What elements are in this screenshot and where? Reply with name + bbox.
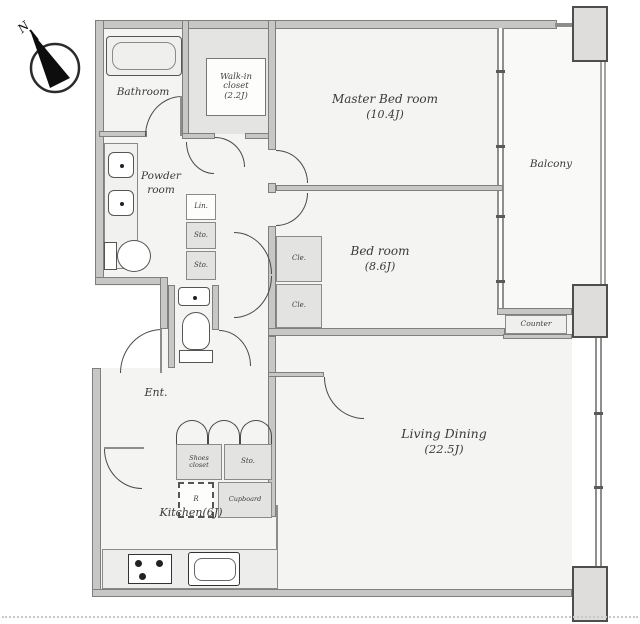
wall-kitchen-pass xyxy=(276,505,278,553)
toilet-icon xyxy=(117,240,151,272)
wall-bedroom-bottom xyxy=(268,328,505,336)
window-tick xyxy=(496,215,505,218)
window-tick xyxy=(594,412,603,415)
door-leaf-front-entry xyxy=(160,329,162,373)
wall-bath-bottom xyxy=(99,131,147,137)
wall-top xyxy=(95,20,557,29)
wall-master-bedroom-divider xyxy=(276,185,503,191)
wall-bedrooms-left-mid xyxy=(268,183,276,193)
wall-wc-left xyxy=(168,285,175,368)
wall-bottom xyxy=(92,589,572,597)
stove-icon xyxy=(128,554,172,584)
wall-top-connector xyxy=(555,23,573,27)
wall-powder-bottom xyxy=(95,277,168,285)
door-arc-front-entry xyxy=(120,329,162,373)
sink-icon xyxy=(178,287,210,306)
wall-bedrooms-left-upper xyxy=(268,20,276,150)
closet-door-scallop xyxy=(208,420,240,444)
wall-wic-bottom-left xyxy=(182,133,215,139)
window-tick xyxy=(496,70,505,73)
door-leaf-bathroom xyxy=(180,96,182,136)
wall-entry-jog xyxy=(160,277,168,329)
toilet-tank xyxy=(179,350,213,363)
label-living-dining: Living Dining (22.5J) xyxy=(360,426,528,457)
window-tick xyxy=(594,486,603,489)
toilet-tank xyxy=(104,242,117,270)
shoes-closet: Shoes closet xyxy=(176,444,222,480)
label-powder-room: Powder room xyxy=(132,170,190,197)
column-mid-right xyxy=(572,284,608,338)
closet-box: Cle. xyxy=(276,284,322,328)
balcony-railing xyxy=(600,62,606,286)
window-tick xyxy=(496,280,505,283)
sink-icon xyxy=(108,152,134,178)
wall-bath-wic-divider xyxy=(182,20,189,138)
compass-north-icon: N xyxy=(8,18,96,106)
storage-box: Sto. xyxy=(186,222,216,249)
closet-door-scallop xyxy=(240,420,272,444)
dotted-boundary-line xyxy=(2,616,638,618)
storage-box: Sto. xyxy=(224,444,272,480)
linen-closet: Lin. xyxy=(186,194,216,220)
walk-in-closet-label-box: Walk-in closet (2.2J) xyxy=(206,58,266,116)
label-bathroom: Bathroom xyxy=(100,86,186,100)
label-kitchen: Kitchen(6J) xyxy=(138,506,244,520)
wall-left-lower xyxy=(92,368,101,597)
kitchen-sink-icon xyxy=(188,552,240,586)
column-top-right xyxy=(572,6,608,62)
storage-box: Sto. xyxy=(186,251,216,280)
counter-box: Counter xyxy=(505,315,567,334)
window-wall-living xyxy=(595,338,602,568)
label-balcony: Balcony xyxy=(505,158,597,172)
label-master-bedroom: Master Bed room (10.4J) xyxy=(300,92,470,122)
label-bedroom: Bed room (8.6J) xyxy=(305,244,455,274)
toilet-icon xyxy=(182,312,210,350)
wall-wc-right xyxy=(212,285,219,330)
wall-living-door-stub xyxy=(268,372,324,377)
window-tick xyxy=(496,145,505,148)
door-leaf-kitchen xyxy=(104,447,144,449)
floor-plan: Lin. Sto. Sto. Cle. Cle. Shoes closet St… xyxy=(0,0,640,624)
closet-door-scallop xyxy=(176,420,208,444)
wall-counter-bottom xyxy=(503,334,572,339)
bathtub-icon xyxy=(106,36,182,76)
sink-icon xyxy=(108,190,134,216)
wall-left-upper xyxy=(95,20,104,285)
wall-balcony-end xyxy=(497,308,572,315)
label-entrance: Ent. xyxy=(128,386,184,400)
column-bottom-right xyxy=(572,566,608,622)
